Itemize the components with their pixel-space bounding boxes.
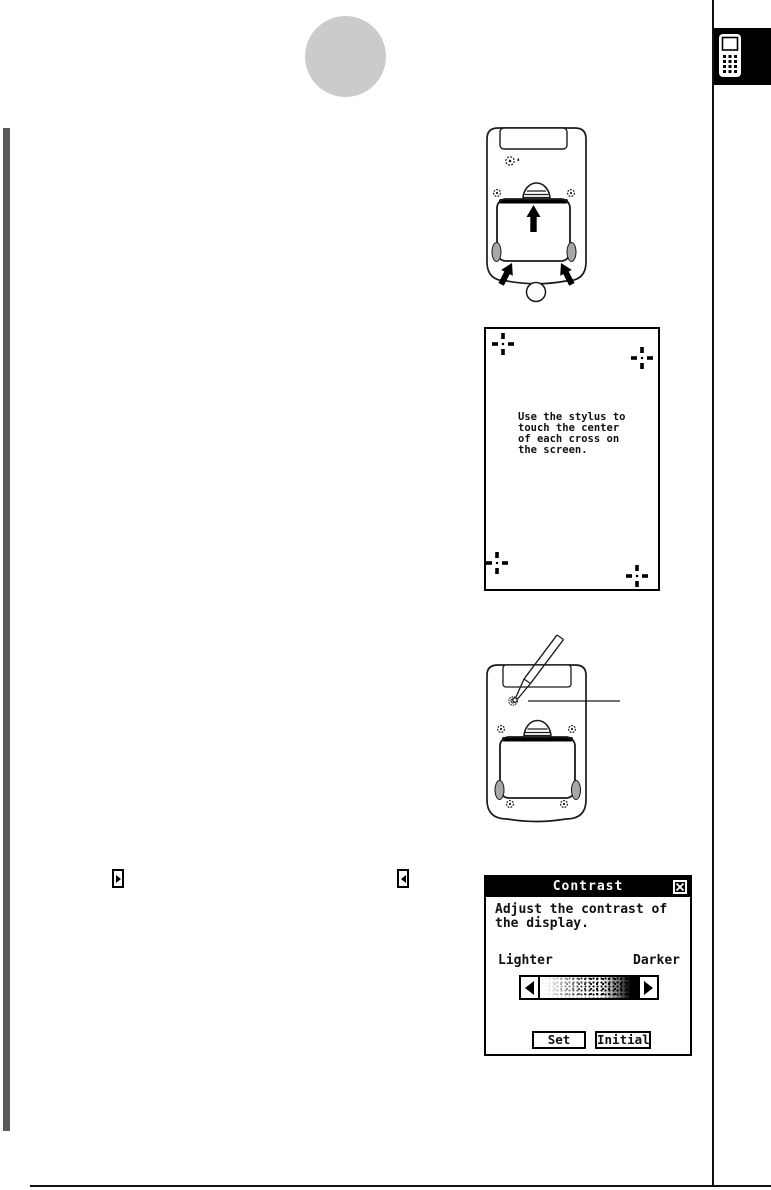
contrast-slider <box>519 975 659 1000</box>
right-edge-rule <box>712 0 714 1187</box>
right-arrow-button-icon[interactable] <box>112 869 124 888</box>
close-icon[interactable] <box>673 880 687 894</box>
right-arrow-glyph <box>644 981 653 995</box>
calibration-cross-icon <box>486 552 508 574</box>
press-arrow-right-icon <box>555 260 577 287</box>
screw-left <box>494 190 501 197</box>
left-arrow-glyph <box>525 981 534 995</box>
contrast-slider-track[interactable] <box>540 977 638 998</box>
battery-cover-figure <box>460 115 630 315</box>
calibration-cross-icon <box>631 347 653 369</box>
battery-cover <box>500 737 575 798</box>
screw-top-right <box>569 726 576 733</box>
stylus-slot <box>503 665 571 687</box>
manual-page: Use the stylus to touch the center of ea… <box>0 0 771 1190</box>
footer-rule <box>30 1185 771 1187</box>
cover-thumb-dome <box>523 183 550 199</box>
dialog-message: Adjust the contrast of the display. <box>495 903 667 931</box>
screw-bottom-left <box>507 801 514 808</box>
calibration-cross-icon <box>626 565 648 587</box>
foot-right <box>567 243 576 262</box>
dialog-titlebar: Contrast <box>486 877 690 897</box>
screw-bottom-right <box>561 801 568 808</box>
screw-top <box>506 157 519 165</box>
chapter-tab <box>714 28 771 85</box>
press-arrow-left-icon <box>495 260 517 287</box>
calibration-cross-icon <box>492 333 514 355</box>
darker-label: Darker <box>633 953 680 968</box>
screw-right <box>568 190 575 197</box>
left-margin-bar <box>3 128 10 1131</box>
calibration-message: Use the stylus to touch the center of ea… <box>518 412 625 456</box>
left-arrow-icon[interactable] <box>521 977 540 998</box>
left-arrow-glyph <box>401 875 406 883</box>
dialog-title: Contrast <box>486 879 690 894</box>
left-arrow-button-icon[interactable] <box>397 869 409 888</box>
up-arrow-icon <box>527 205 541 232</box>
foot-right <box>572 781 581 800</box>
right-arrow-icon[interactable] <box>638 977 657 998</box>
calibration-screen-figure: Use the stylus to touch the center of ea… <box>484 327 660 591</box>
callout-circle <box>527 283 546 302</box>
calculator-icon <box>718 33 742 78</box>
initial-button[interactable]: Initial <box>595 1031 651 1049</box>
cover-thumb-dome <box>524 721 551 738</box>
contrast-dialog: Contrast Adjust the contrast of the disp… <box>484 875 692 1056</box>
foot-left <box>492 243 501 262</box>
right-arrow-glyph <box>116 875 121 883</box>
set-button[interactable]: Set <box>532 1031 586 1049</box>
stylus-reset-figure <box>460 630 720 830</box>
lighter-label: Lighter <box>498 953 553 968</box>
foot-left <box>495 781 504 800</box>
page-number-bubble <box>305 16 386 97</box>
stylus-slot <box>500 128 567 149</box>
screw-top-left <box>498 726 505 733</box>
